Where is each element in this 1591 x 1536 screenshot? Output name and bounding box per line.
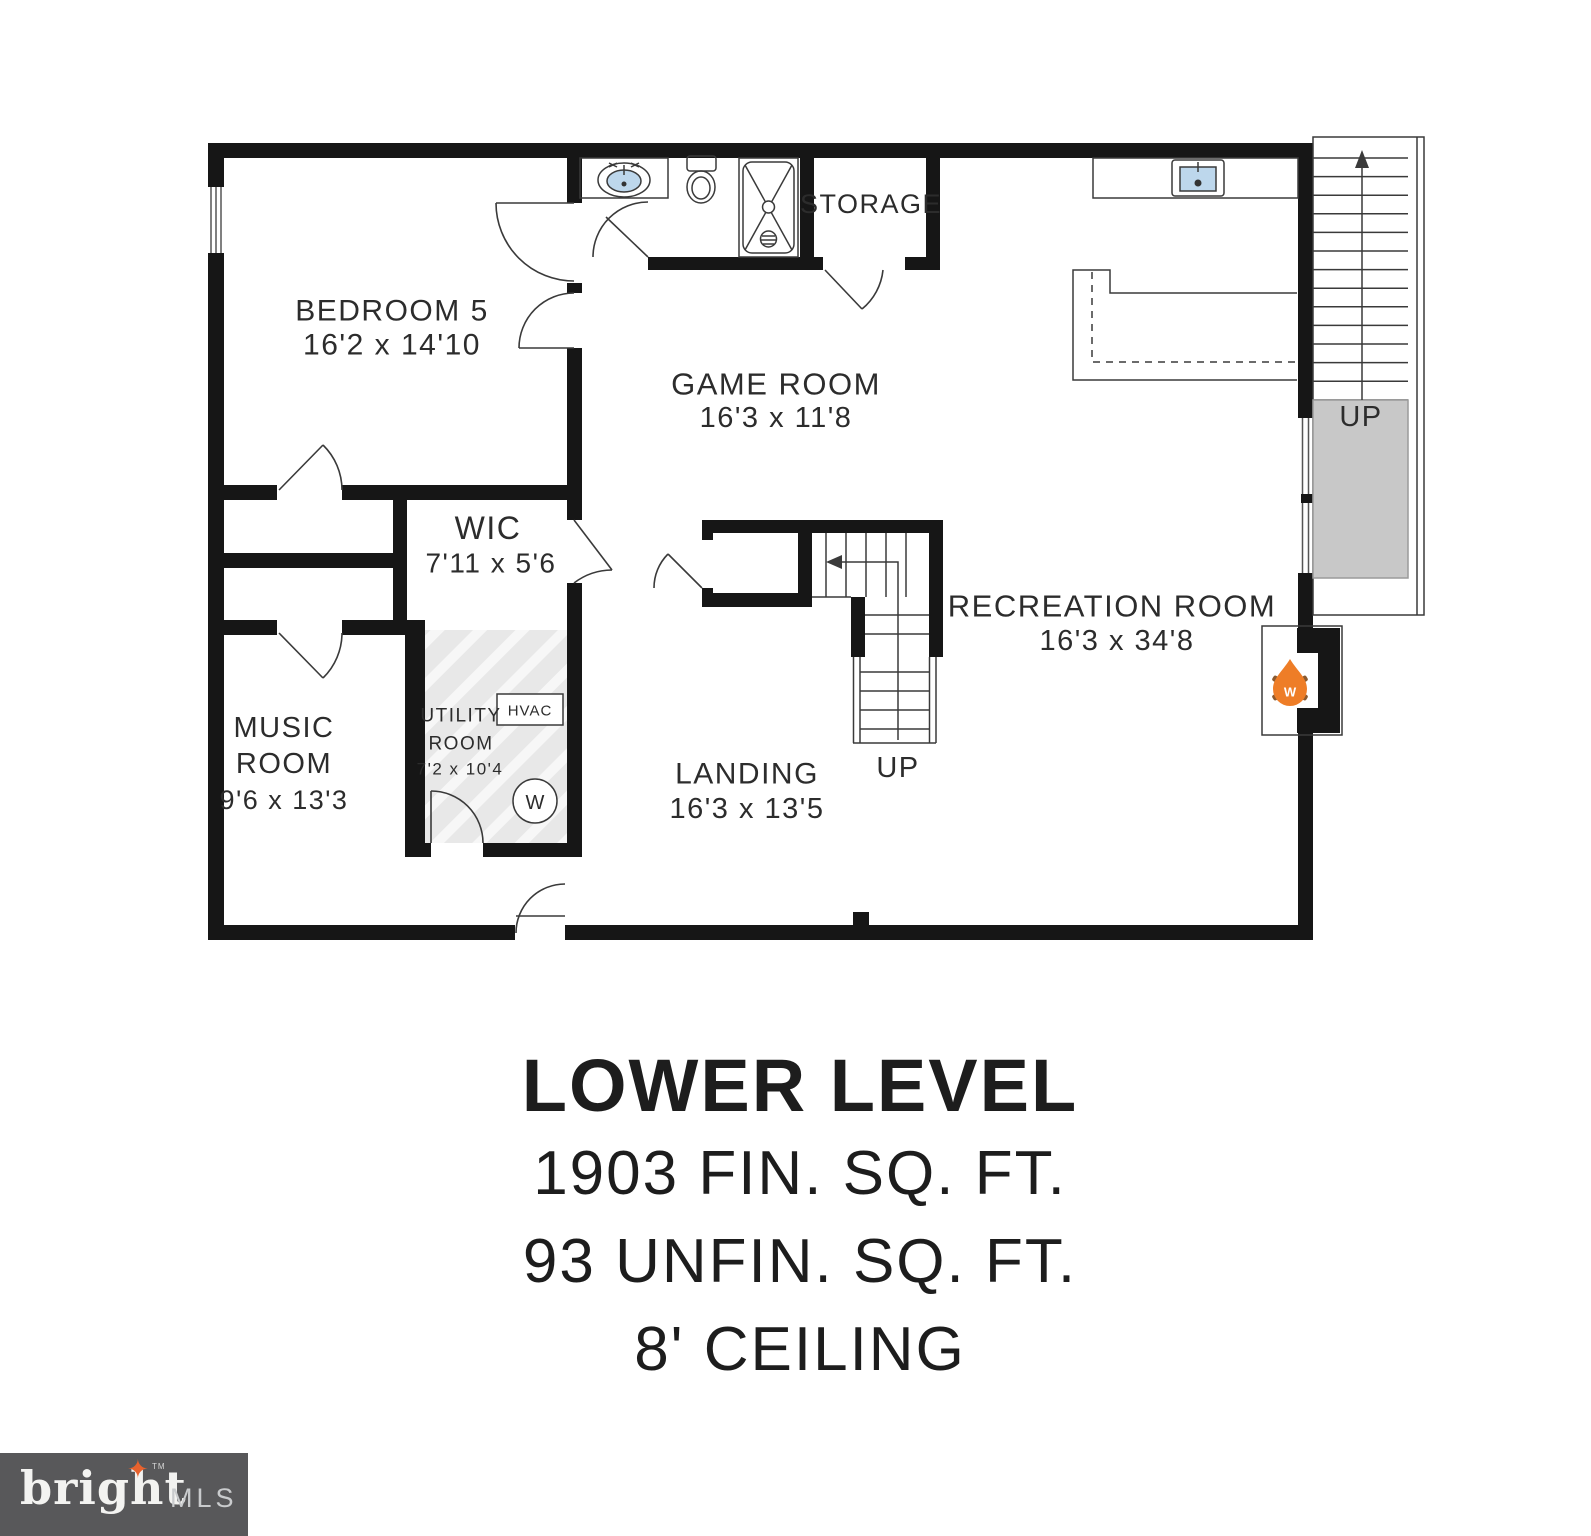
mls-label: MLS bbox=[170, 1483, 238, 1514]
hvac-unit-icon: HVAC bbox=[497, 694, 563, 725]
finished-sqft: 1903 FIN. SQ. FT. bbox=[300, 1130, 1300, 1218]
exterior-stairs-right bbox=[1313, 137, 1424, 615]
door-arc-icon bbox=[496, 203, 574, 281]
washer-icon: W bbox=[513, 779, 557, 823]
room-label-utility-room-2: ROOM bbox=[428, 734, 493, 755]
room-dims-recreation-room: 16'3 x 34'8 bbox=[1040, 625, 1195, 657]
shower-icon bbox=[739, 158, 798, 257]
door-arc-icon bbox=[654, 554, 702, 588]
bar-sink-icon bbox=[1172, 160, 1224, 196]
door-arc-icon bbox=[279, 633, 342, 678]
star-icon: ✦ bbox=[127, 1455, 149, 1485]
room-dims-utility-room: 7'2 x 10'4 bbox=[417, 760, 504, 779]
door-arc-icon bbox=[574, 520, 612, 583]
door-arc-icon bbox=[593, 202, 648, 257]
interior-stairs-center bbox=[812, 533, 936, 743]
room-dims-wic: 7'11 x 5'6 bbox=[425, 548, 556, 579]
room-label-game-room: GAME ROOM bbox=[671, 367, 881, 402]
stairs-up-label-right: UP bbox=[1339, 401, 1382, 433]
trademark-label: TM bbox=[152, 1462, 166, 1471]
room-label-storage: STORAGE bbox=[800, 189, 942, 219]
ceiling-height: 8' CEILING bbox=[300, 1306, 1300, 1394]
sink-icon bbox=[580, 158, 668, 198]
door-arc-icon bbox=[279, 445, 342, 490]
level-title: LOWER LEVEL bbox=[300, 1042, 1300, 1130]
room-label-bedroom5: BEDROOM 5 bbox=[295, 295, 489, 328]
room-dims-bedroom5: 16'2 x 14'10 bbox=[303, 329, 481, 362]
bright-mls-logo: bright ✦ TM MLS bbox=[0, 1453, 248, 1536]
unfinished-sqft: 93 UNFIN. SQ. FT. bbox=[300, 1218, 1300, 1306]
floorplan-drawing: W HVAC W BEDROOM 5 16'2 x 14'10 GAME ROO… bbox=[0, 0, 1591, 1010]
room-label-landing: LANDING bbox=[675, 758, 819, 791]
room-label-music-room-1: MUSIC bbox=[234, 712, 335, 744]
fireplace-w-label: W bbox=[1284, 685, 1297, 700]
toilet-icon bbox=[687, 156, 716, 203]
room-label-music-room-2: ROOM bbox=[236, 748, 332, 780]
bathroom-fixtures bbox=[580, 156, 798, 257]
room-label-recreation-room: RECREATION ROOM bbox=[948, 589, 1277, 624]
washer-label: W bbox=[526, 792, 545, 814]
door-arc-icon bbox=[516, 884, 565, 933]
stairs-up-label-center: UP bbox=[876, 752, 919, 784]
wet-bar bbox=[1073, 158, 1298, 380]
room-dims-music-room: 9'6 x 13'3 bbox=[220, 785, 349, 815]
fireplace-icon: W bbox=[1271, 659, 1308, 706]
door-arc-icon bbox=[825, 270, 883, 309]
floorplan-page: { "floorplan": { "rooms": { "bedroom5": … bbox=[0, 0, 1591, 1536]
door-arc-icon bbox=[519, 293, 574, 348]
room-dims-landing: 16'3 x 13'5 bbox=[670, 793, 825, 825]
title-block: LOWER LEVEL 1903 FIN. SQ. FT. 93 UNFIN. … bbox=[300, 1042, 1300, 1394]
room-label-utility-room-1: UTILITY bbox=[420, 706, 501, 727]
hvac-label: HVAC bbox=[508, 703, 553, 720]
room-label-wic: WIC bbox=[455, 510, 522, 546]
room-dims-game-room: 16'3 x 11'8 bbox=[700, 402, 853, 434]
